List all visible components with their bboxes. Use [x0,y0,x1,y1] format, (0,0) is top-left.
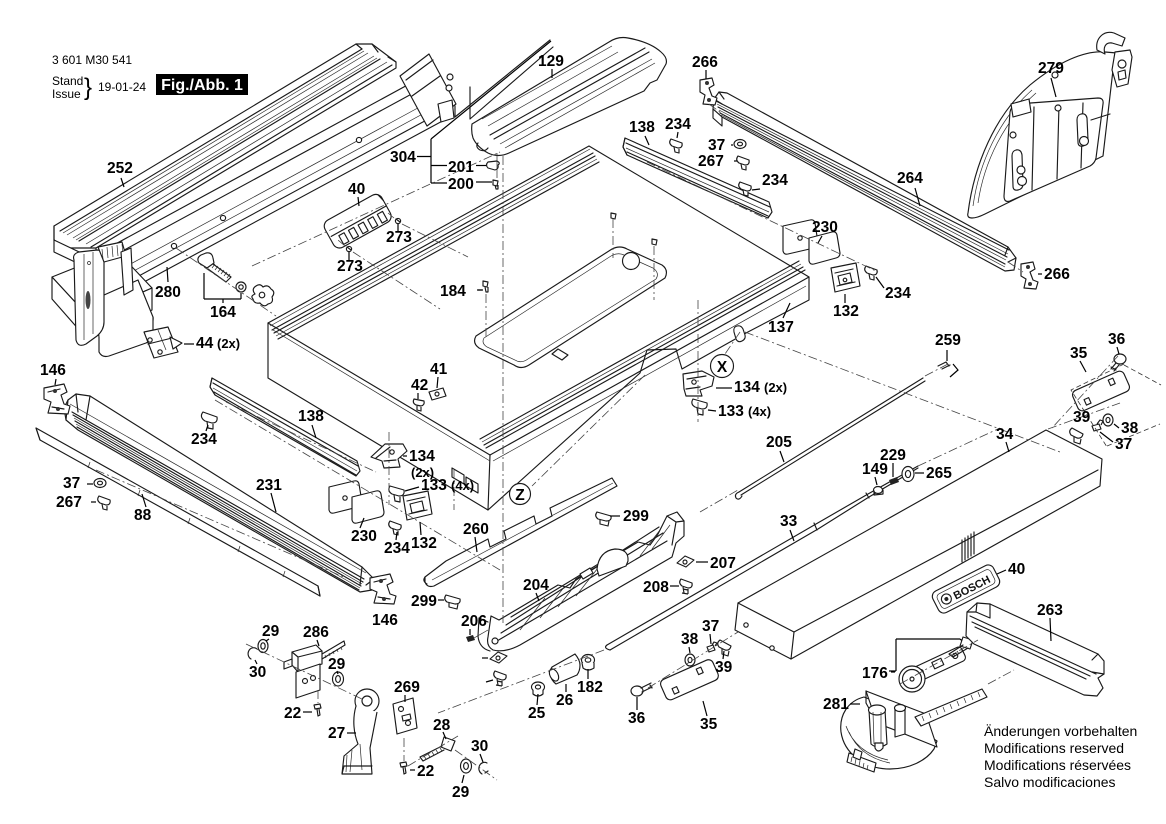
svg-text:138: 138 [629,119,655,136]
svg-text:29: 29 [328,656,346,673]
svg-text:(4x): (4x) [451,478,474,493]
svg-text:304: 304 [390,149,416,166]
svg-text:269: 269 [394,679,420,696]
svg-text:29: 29 [262,623,280,640]
svg-text:201: 201 [448,159,474,176]
svg-text:40: 40 [348,181,365,198]
svg-text:134: 134 [734,379,760,396]
svg-text:200: 200 [448,176,474,193]
svg-text:286: 286 [303,624,329,641]
svg-text:Issue: Issue [52,87,81,101]
svg-text:260: 260 [463,521,489,538]
svg-text:146: 146 [372,612,398,629]
svg-text:88: 88 [134,507,152,524]
svg-text:22: 22 [417,763,434,780]
svg-text:36: 36 [628,710,646,727]
svg-text:44: 44 [196,335,214,352]
svg-text:27: 27 [328,725,345,742]
svg-text:}: } [84,74,92,101]
svg-text:234: 234 [762,172,788,189]
svg-text:37: 37 [1115,436,1132,453]
svg-text:184: 184 [440,283,466,300]
svg-text:30: 30 [471,738,488,755]
svg-text:234: 234 [885,285,911,302]
svg-text:40: 40 [1008,561,1025,578]
svg-text:207: 207 [710,555,736,572]
svg-text:35: 35 [1070,345,1088,362]
svg-text:234: 234 [191,431,217,448]
svg-text:38: 38 [1121,420,1139,437]
svg-text:259: 259 [935,332,961,349]
svg-text:134: 134 [409,448,435,465]
svg-text:129: 129 [538,53,564,70]
svg-text:35: 35 [700,716,718,733]
svg-text:X: X [717,359,728,376]
svg-text:280: 280 [155,284,181,301]
svg-text:231: 231 [256,477,282,494]
svg-text:41: 41 [430,361,448,378]
svg-text:39: 39 [1073,409,1091,426]
svg-text:Salvo modificaciones: Salvo modificaciones [984,774,1116,790]
svg-text:279: 279 [1038,60,1064,77]
svg-text:133: 133 [718,403,744,420]
svg-text:Fig./Abb. 1: Fig./Abb. 1 [161,77,243,94]
svg-text:299: 299 [411,593,437,610]
svg-text:273: 273 [337,258,363,275]
svg-text:206: 206 [461,613,487,630]
svg-text:230: 230 [812,219,838,236]
svg-text:37: 37 [63,475,80,492]
svg-text:Modifications réservées: Modifications réservées [984,757,1131,773]
svg-text:146: 146 [40,362,66,379]
svg-text:234: 234 [384,540,410,557]
svg-text:133: 133 [421,477,447,494]
svg-text:176: 176 [862,665,888,682]
svg-text:252: 252 [107,160,133,177]
svg-text:34: 34 [996,426,1014,443]
svg-text:39: 39 [715,659,733,676]
svg-text:29: 29 [452,784,470,801]
svg-text:208: 208 [643,579,669,596]
svg-text:267: 267 [56,494,82,511]
svg-text:204: 204 [523,577,549,594]
svg-text:25: 25 [528,705,546,722]
svg-text:234: 234 [665,116,691,133]
svg-text:37: 37 [708,137,725,154]
svg-text:149: 149 [862,461,888,478]
svg-text:38: 38 [681,631,699,648]
svg-text:205: 205 [766,434,792,451]
svg-text:132: 132 [833,303,859,320]
svg-text:33: 33 [780,513,798,530]
svg-text:267: 267 [698,153,724,170]
svg-text:230: 230 [351,528,377,545]
svg-text:281: 281 [823,696,849,713]
svg-text:37: 37 [702,618,719,635]
svg-text:30: 30 [249,664,266,681]
svg-text:3 601 M30 541: 3 601 M30 541 [52,53,132,67]
svg-text:22: 22 [284,705,301,722]
svg-text:299: 299 [623,508,649,525]
svg-text:(2x): (2x) [217,336,240,351]
svg-text:263: 263 [1037,602,1063,619]
svg-text:Modifications reserved: Modifications reserved [984,740,1124,756]
svg-text:182: 182 [577,679,603,696]
svg-text:137: 137 [768,319,794,336]
svg-text:Änderungen vorbehalten: Änderungen vorbehalten [984,723,1137,739]
svg-text:273: 273 [386,229,412,246]
svg-text:(2x): (2x) [764,380,787,395]
svg-text:Z: Z [515,487,525,504]
svg-text:164: 164 [210,304,236,321]
svg-text:26: 26 [556,692,574,709]
svg-text:42: 42 [411,377,428,394]
svg-text:132: 132 [411,535,437,552]
svg-text:266: 266 [692,54,718,71]
svg-text:265: 265 [926,465,952,482]
svg-text:(4x): (4x) [748,404,771,419]
svg-text:Stand: Stand [52,74,83,88]
svg-text:264: 264 [897,170,923,187]
svg-text:138: 138 [298,408,324,425]
svg-text:36: 36 [1108,331,1126,348]
svg-text:28: 28 [433,717,451,734]
svg-text:266: 266 [1044,266,1070,283]
svg-text:19-01-24: 19-01-24 [98,80,146,94]
